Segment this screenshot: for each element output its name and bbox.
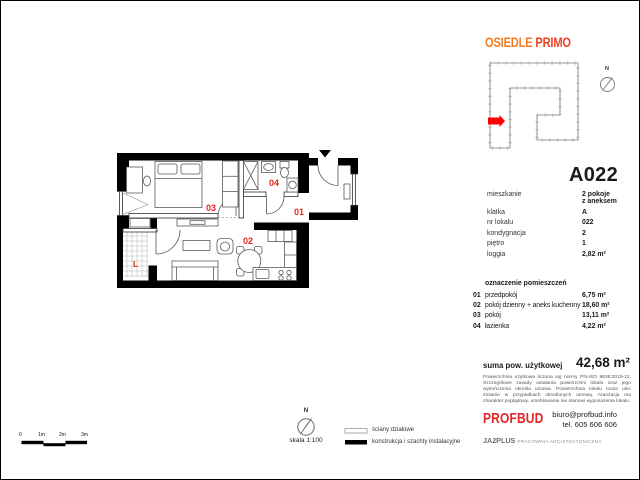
kitchen-counter	[253, 268, 297, 281]
wardrobe	[223, 161, 239, 207]
detail-label: klatka	[487, 209, 582, 216]
toilet	[280, 162, 289, 178]
unit-details-table: mieszkanie 2 pokoje z aneksem klatka A n…	[487, 191, 632, 262]
floor-plan	[117, 150, 358, 288]
shower	[244, 162, 259, 190]
scale-ratio-label: skala 1:100	[283, 437, 329, 444]
plan-label-bath-04: 04	[269, 178, 279, 188]
detail-value: 022	[582, 219, 594, 226]
contact-block: biuro@profbud.info tel. 605 606 606	[500, 410, 617, 429]
detail-row: piętro 1	[487, 240, 632, 247]
detail-value: A	[582, 209, 587, 216]
room-area: 13,11 m²	[582, 312, 609, 319]
detail-value: 2 pokoje z aneksem	[582, 191, 617, 205]
washing-machine	[287, 178, 298, 192]
room-area: 18,60 m²	[582, 302, 610, 309]
detail-label: piętro	[487, 240, 582, 247]
scale-tick-2m: 2m	[59, 432, 66, 438]
site-plan-map	[488, 63, 578, 148]
room-row: 03 pokój 13,11 m²	[473, 312, 633, 319]
furniture	[127, 161, 351, 281]
entrance-door-arc	[318, 166, 338, 186]
rooms-legend-heading: oznaczenie pomieszczeń	[485, 280, 633, 287]
hall-wardrobe	[268, 231, 292, 242]
detail-value: 2,82 m²	[582, 251, 606, 258]
room-row: 04 łazienka 4,22 m²	[473, 323, 633, 330]
plan-label-room-03: 03	[206, 203, 216, 213]
scale-bar	[22, 441, 88, 446]
sink	[262, 162, 276, 173]
detail-label: loggia	[487, 251, 582, 258]
room-row: 01 przedpokój 6,75 m²	[473, 292, 633, 299]
radiator	[344, 184, 350, 199]
legend-label-partition: ściany działowe	[372, 427, 414, 433]
sofa	[172, 261, 218, 281]
scale-tick-0: 0	[19, 432, 22, 438]
project-name-part1: OSIEDLE	[485, 35, 532, 50]
armchair	[217, 239, 233, 255]
room-number: 04	[473, 323, 485, 330]
site-north-label: N	[600, 66, 614, 72]
room-row: 02 pokój dzienny + aneks kuchenny 18,60 …	[473, 302, 633, 309]
entrance-marker-icon	[319, 150, 331, 158]
rooms-legend: oznaczenie pomieszczeń 01 przedpokój 6,7…	[473, 280, 633, 333]
plan-label-living-02: 02	[243, 236, 253, 246]
detail-row: kondygnacja 2	[487, 230, 632, 237]
desk	[127, 167, 151, 193]
fridge	[285, 242, 297, 268]
room-number: 01	[473, 292, 485, 299]
north-compass-icon	[601, 78, 615, 92]
legend-swatch-structure	[345, 440, 367, 445]
legend-swatch-partition	[345, 429, 367, 434]
detail-value: 1	[582, 240, 586, 247]
plan-label-hall-01: 01	[294, 207, 304, 217]
loggia-hatch-pattern	[123, 232, 148, 277]
architect-studio-desc: PRACOWNIA ARCHITEKTONICZNA	[517, 440, 601, 445]
area-disclaimer: Powierzchnia użytkowa liczona wg normy P…	[483, 375, 631, 405]
room-number: 02	[473, 302, 485, 309]
room-number: 03	[473, 312, 485, 319]
coffee-table	[183, 241, 210, 251]
detail-label: mieszkanie	[487, 191, 582, 205]
project-name: OSIEDLE PRIMO	[485, 35, 571, 50]
radiator	[130, 219, 150, 228]
bed	[155, 162, 202, 208]
scale-north-compass-icon	[298, 419, 314, 436]
unit-code: A022	[500, 164, 618, 187]
architect-studio: JA2PLUS PRACOWNIA ARCHITEKTONICZNA	[483, 436, 602, 445]
scale-tick-3m: 3m	[81, 432, 88, 438]
detail-row: loggia 2,82 m²	[487, 251, 632, 258]
room-name: łazienka	[485, 323, 582, 330]
detail-value: 2	[582, 230, 586, 237]
scale-tick-1m: 1m	[38, 432, 45, 438]
legend-label-structure: konstrukcja i szachty instalacyjne	[372, 439, 460, 445]
room-name: przedpokój	[485, 292, 582, 299]
room-name: pokój	[485, 312, 582, 319]
total-area-value: 42,68 m²	[538, 355, 630, 370]
contact-email: biuro@profbud.info	[500, 410, 617, 420]
floorplan-card: OSIEDLE PRIMO N A022 mieszkanie 2 pokoje…	[0, 0, 640, 480]
bathroom-door-arc	[267, 197, 285, 215]
tv-sideboard	[177, 219, 218, 226]
detail-label: nr lokalu	[487, 219, 582, 226]
detail-row: mieszkanie 2 pokoje z aneksem	[487, 191, 632, 205]
plan-label-loggia: L	[133, 259, 138, 269]
loggia-door-arc	[156, 230, 180, 254]
contact-phone: tel. 605 606 606	[500, 420, 617, 430]
project-name-part2: PRIMO	[535, 35, 570, 50]
detail-row: nr lokalu 022	[487, 219, 632, 226]
room-area: 4,22 m²	[582, 323, 606, 330]
room-area: 6,75 m²	[582, 292, 606, 299]
plan-north-label: N	[299, 407, 313, 414]
architect-studio-name: JA2PLUS	[483, 436, 515, 445]
detail-label: kondygnacja	[487, 230, 582, 237]
detail-row: klatka A	[487, 209, 632, 216]
room-name: pokój dzienny + aneks kuchenny	[485, 302, 582, 309]
